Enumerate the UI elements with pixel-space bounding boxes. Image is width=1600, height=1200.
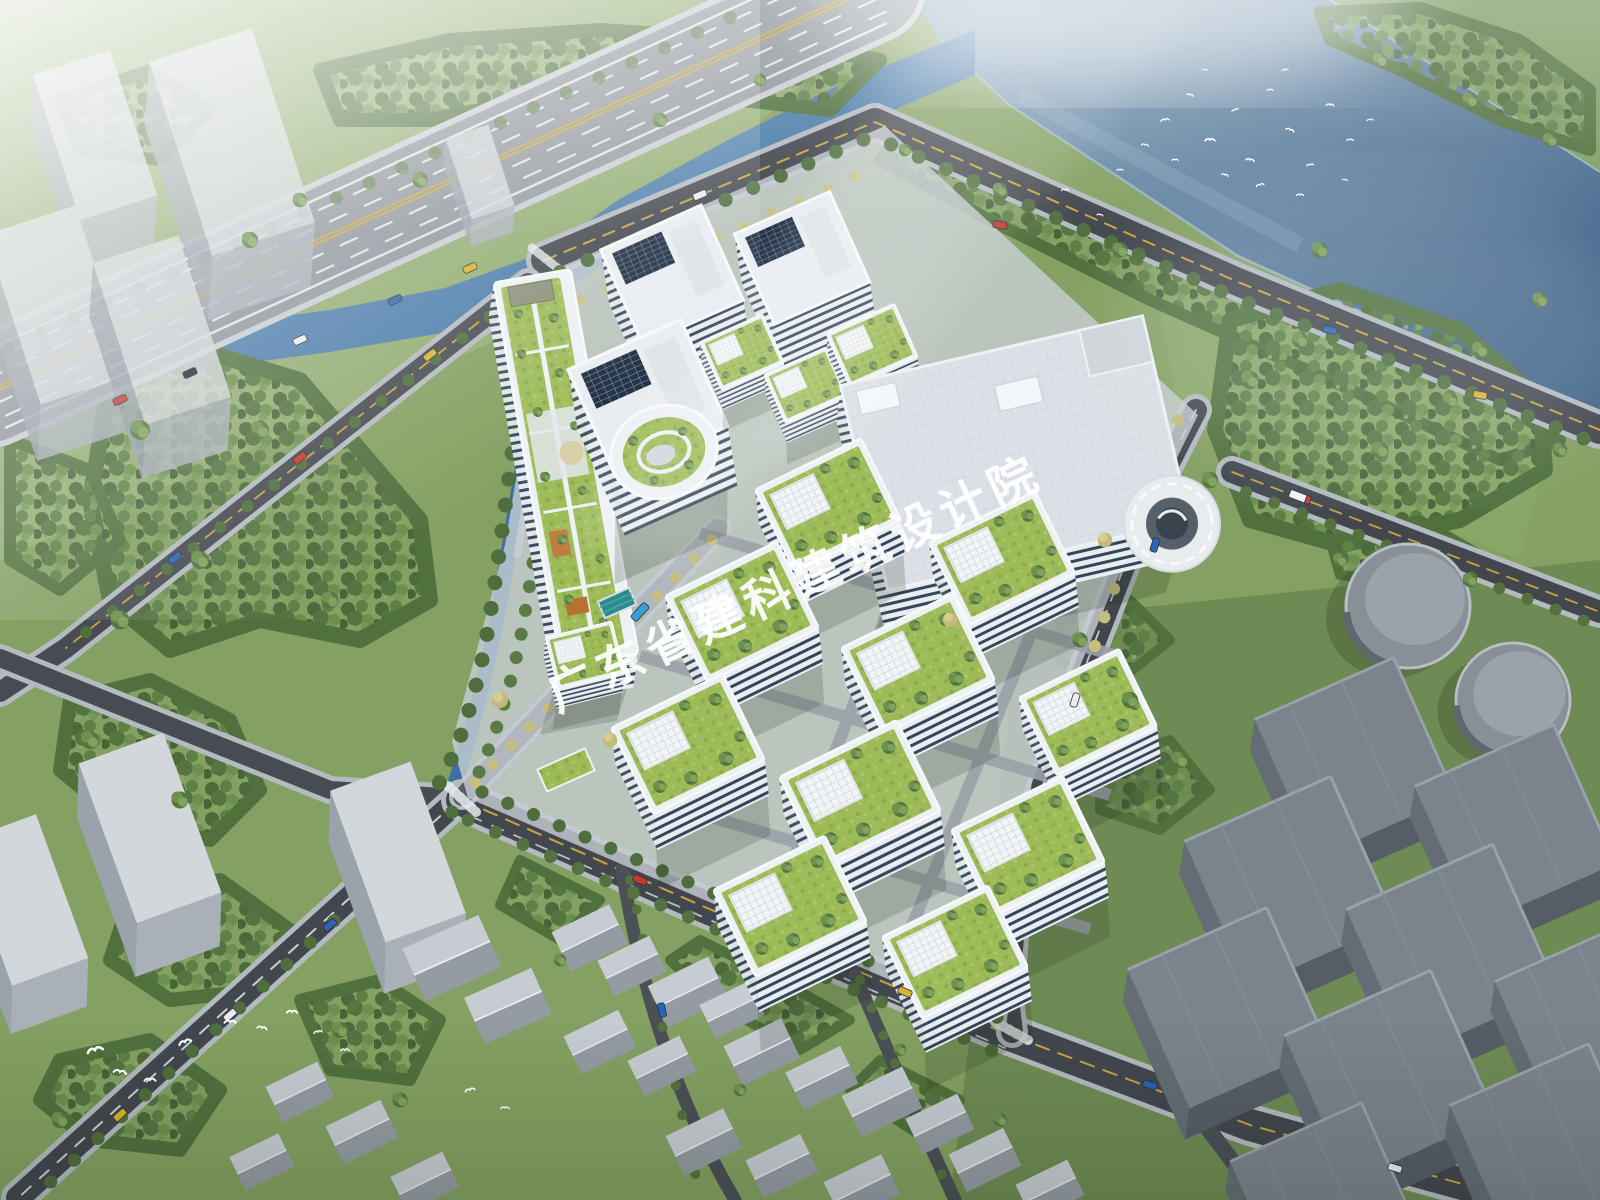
rendering-stage: 广东省建科建筑设计院 <box>0 0 1600 1200</box>
bottom-vignette <box>0 1020 1600 1200</box>
aerial-rendering-canvas: 广东省建科建筑设计院 <box>0 0 1600 1200</box>
top-veil <box>0 0 1600 240</box>
